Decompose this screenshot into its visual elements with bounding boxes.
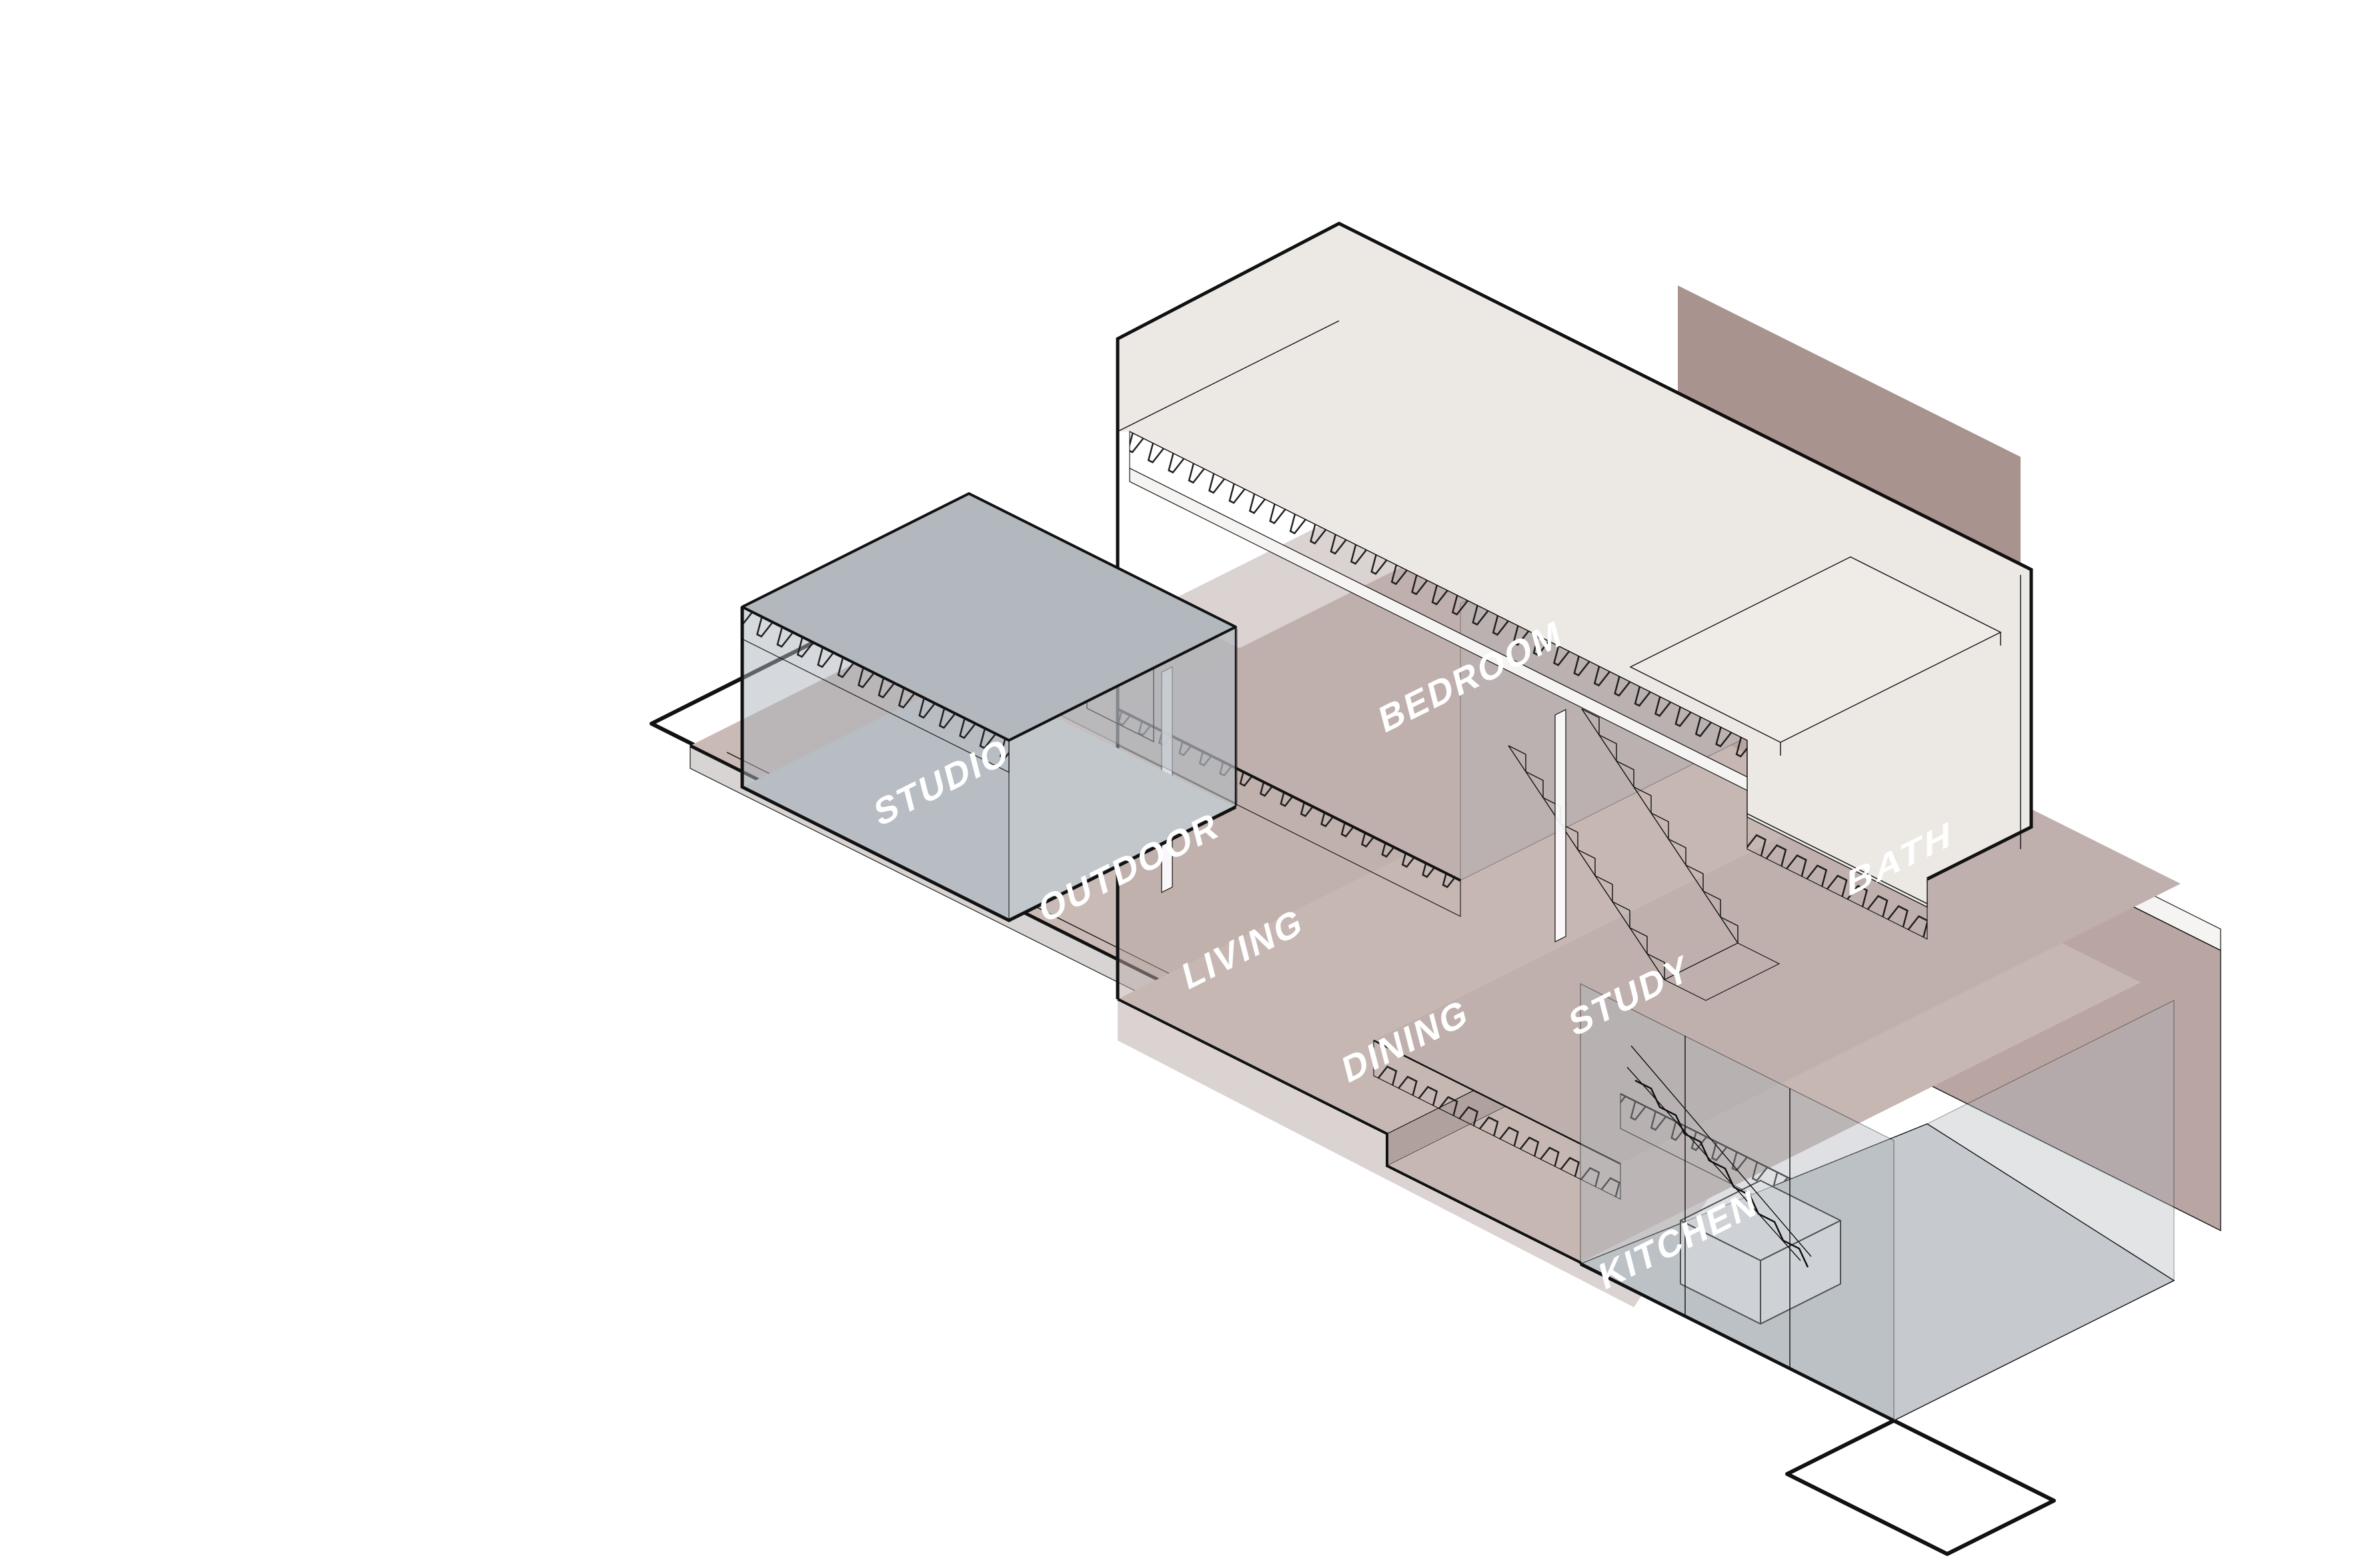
- dining-post: [1555, 710, 1566, 942]
- page: STUDIO OUTDOOR LIVING DINING KITCHEN BED…: [0, 0, 2380, 1560]
- site-plane-right: [1787, 1421, 2054, 1554]
- axonometric-house-diagram: STUDIO OUTDOOR LIVING DINING KITCHEN BED…: [0, 0, 2380, 1560]
